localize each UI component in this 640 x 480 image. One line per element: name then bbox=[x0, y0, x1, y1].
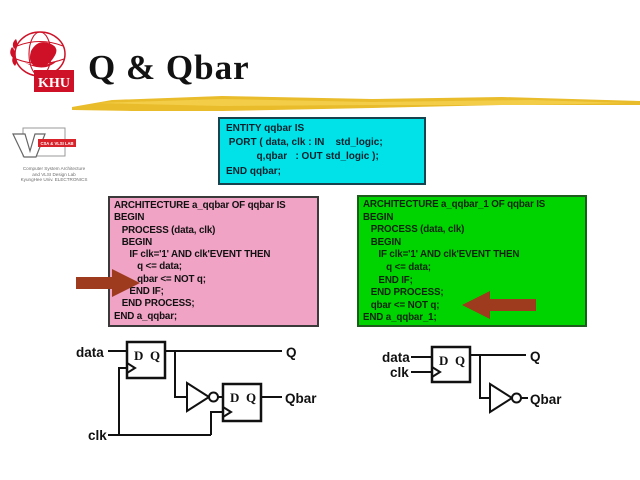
lab-banner-text: CSA & VLSI LAB bbox=[40, 141, 73, 146]
title-underline-decoration bbox=[72, 92, 640, 116]
code-line: BEGIN bbox=[363, 237, 581, 250]
code-line: END PROCESS; bbox=[114, 298, 313, 310]
signal-label-qbar: Qbar bbox=[530, 392, 562, 407]
lab-logo: CSA & VLSI LAB Computer System Architect… bbox=[10, 126, 98, 183]
lab-caption: Computer System Architecture and VLSI De… bbox=[10, 166, 98, 183]
page-title: Q & Qbar bbox=[88, 48, 250, 88]
code-line: PROCESS (data, clk) bbox=[363, 224, 581, 237]
code-line: BEGIN bbox=[114, 237, 313, 249]
code-line: ENTITY qqbar IS bbox=[226, 122, 418, 136]
dff-q-label: Q bbox=[455, 353, 465, 368]
laurel-decoration bbox=[10, 39, 17, 66]
code-line: END a_qqbar; bbox=[114, 311, 313, 323]
code-line: END IF; bbox=[363, 275, 581, 288]
inverter-bubble bbox=[209, 393, 218, 402]
dff-d-label: D bbox=[439, 353, 448, 368]
code-line: END qqbar; bbox=[226, 165, 418, 179]
code-line: PROCESS (data, clk) bbox=[114, 225, 313, 237]
signal-label-q: Q bbox=[530, 349, 541, 364]
lab-caption-line: Computer System Architecture bbox=[10, 166, 98, 172]
code-line: IF clk='1' AND clk'EVENT THEN bbox=[363, 249, 581, 262]
arrow-left-icon bbox=[462, 291, 536, 319]
lab-logo-icon: CSA & VLSI LAB bbox=[10, 126, 98, 160]
code-line: ARCHITECTURE a_qqbar OF qqbar IS bbox=[114, 200, 313, 212]
signal-label-qbar: Qbar bbox=[285, 391, 317, 406]
dff2-q-label: Q bbox=[246, 390, 256, 405]
signal-label-data: data bbox=[382, 350, 410, 365]
code-line: q <= data; bbox=[363, 262, 581, 275]
khu-logo-icon: KHU bbox=[8, 28, 76, 94]
code-line: q,qbar : OUT std_logic ); bbox=[226, 150, 418, 164]
code-line: ARCHITECTURE a_qqbar_1 OF qqbar IS bbox=[363, 199, 581, 212]
signal-label-clk: clk bbox=[88, 428, 107, 443]
dff1-q-label: Q bbox=[150, 348, 160, 363]
code-line: BEGIN bbox=[363, 212, 581, 225]
entity-code-box: ENTITY qqbar IS PORT ( data, clk : IN st… bbox=[218, 117, 426, 185]
slide-canvas: KHU Q & Qbar CSA & VLSI LAB Computer Sys… bbox=[0, 0, 640, 480]
inverter-triangle bbox=[187, 383, 209, 411]
lab-caption-line: KyungHee Univ. ELECTRONICS bbox=[10, 177, 98, 183]
code-line: BEGIN bbox=[114, 212, 313, 224]
code-line: IF clk='1' AND clk'EVENT THEN bbox=[114, 249, 313, 261]
khu-logo-text: KHU bbox=[38, 76, 70, 91]
dff2-d-label: D bbox=[230, 390, 239, 405]
code-line: q <= data; bbox=[114, 261, 313, 273]
signal-label-data: data bbox=[76, 345, 104, 360]
code-line-highlighted: qbar <= NOT q; bbox=[114, 274, 313, 286]
arrow-right-icon bbox=[76, 269, 140, 297]
architecture-left-code-box: ARCHITECTURE a_qqbar OF qqbar IS BEGIN P… bbox=[108, 196, 319, 327]
code-line: PORT ( data, clk : IN std_logic; bbox=[226, 136, 418, 150]
code-line: END IF; bbox=[114, 286, 313, 298]
dff1-d-label: D bbox=[134, 348, 143, 363]
circuit-right-diagram: D Q data clk Q Qbar bbox=[378, 340, 573, 430]
inverter-triangle bbox=[490, 384, 512, 412]
circuit-left-diagram: D Q D Q data Q Qbar clk bbox=[70, 338, 320, 448]
signal-label-clk: clk bbox=[390, 365, 409, 380]
inverter-bubble bbox=[512, 394, 521, 403]
signal-label-q: Q bbox=[286, 345, 297, 360]
